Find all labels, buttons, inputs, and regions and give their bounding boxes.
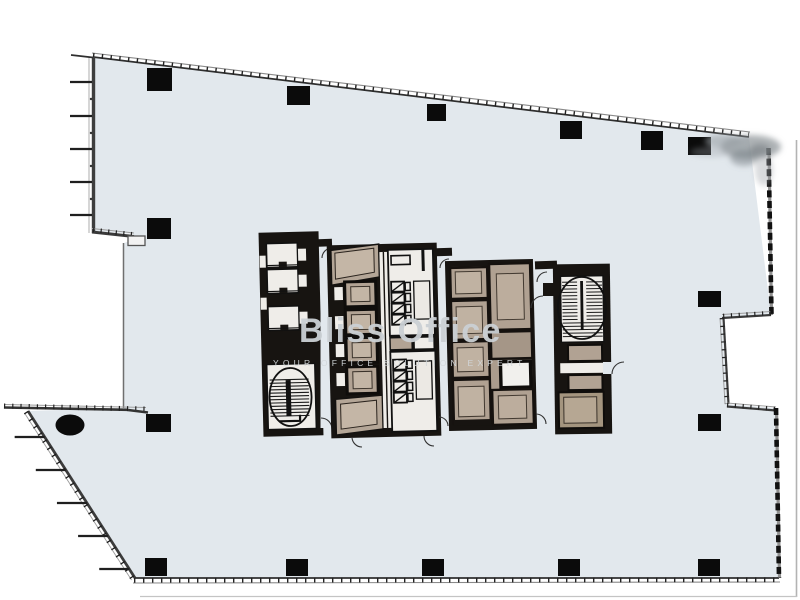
svg-text:Bliss Office: Bliss Office (299, 312, 502, 350)
svg-text:YOUR OFFICE SOLUTION EXPERT: YOUR OFFICE SOLUTION EXPERT (273, 358, 527, 368)
